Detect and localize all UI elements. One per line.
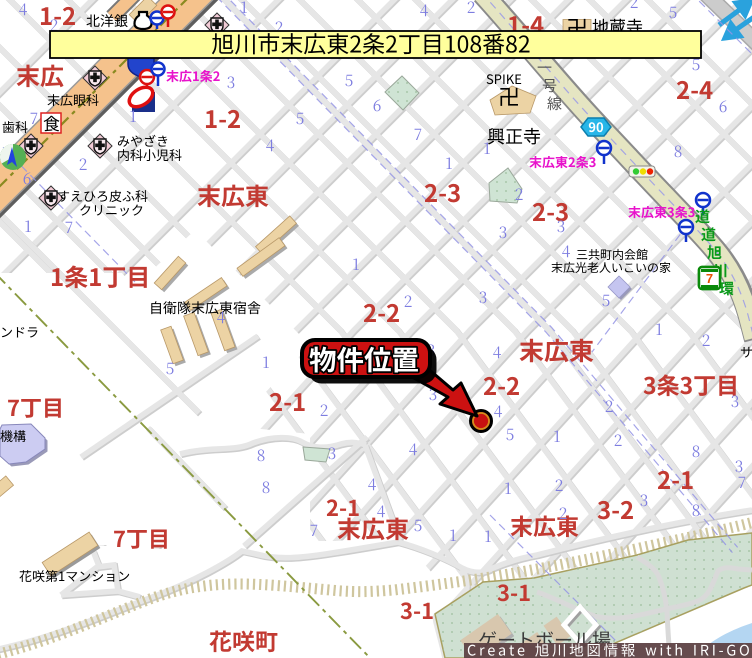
svg-text:7: 7 xyxy=(706,271,713,286)
